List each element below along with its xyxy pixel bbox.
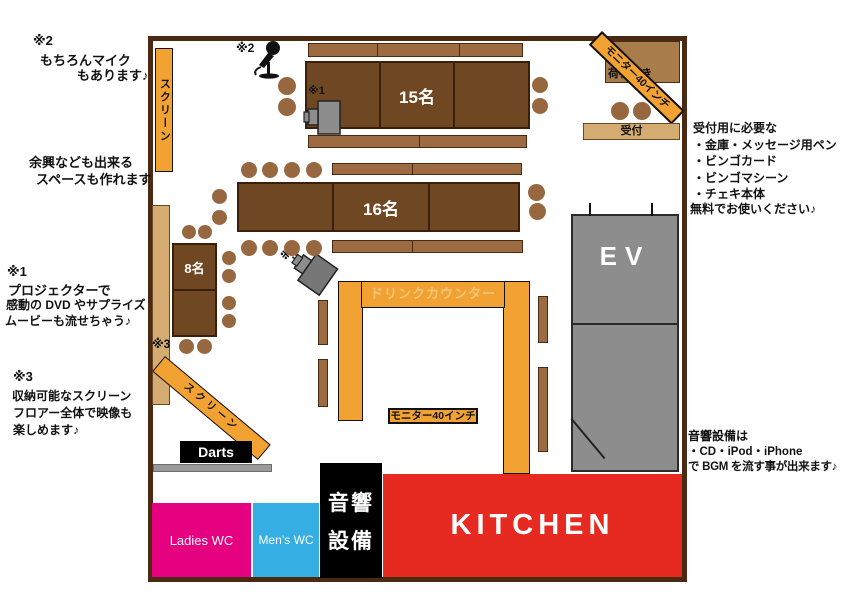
- screen-note-line3: 楽しめます♪: [13, 421, 79, 438]
- projector-icon: [303, 99, 343, 140]
- counter-bench-left-1: [318, 300, 328, 345]
- sound-equipment-room: 音響 設備: [320, 463, 382, 578]
- stool: [262, 162, 278, 178]
- monitor-40-box-label: モニター40インチ: [390, 410, 475, 422]
- stool: [222, 251, 236, 265]
- stool: [198, 225, 212, 239]
- stool: [532, 77, 548, 93]
- drink-counter-left-leg: [338, 281, 363, 421]
- sound-note-line1: 音響設備は: [688, 427, 748, 444]
- elevator-label: EV: [573, 241, 677, 272]
- stool: [528, 184, 545, 201]
- screen-panel-left: スクリーン: [155, 48, 173, 172]
- floor-plan: ※2 もちろんマイク もあります♪ 余興なども出来る スペースも作れます ※1 …: [0, 0, 842, 595]
- darts-shelf: [153, 464, 272, 472]
- projector-note-line2: 感動の DVD やサプライズ: [6, 296, 146, 313]
- stool: [284, 162, 300, 178]
- stool: [278, 98, 296, 116]
- sound-room-label-2: 設備: [328, 525, 374, 555]
- stool: [222, 269, 236, 283]
- kitchen-label: KITCHEN: [451, 509, 615, 542]
- elevator-divider: [573, 323, 677, 325]
- monitor-40-box: モニター40インチ: [388, 408, 478, 424]
- stool: [284, 240, 300, 256]
- stool: [306, 162, 322, 178]
- reception-note-line3: ・ビンゴカード: [693, 152, 777, 169]
- stool: [633, 102, 651, 120]
- sound-room-label-1: 音響: [328, 487, 374, 517]
- darts-label: Darts: [198, 444, 234, 460]
- mic-note-line2: もあります♪: [77, 65, 149, 84]
- stool: [306, 240, 322, 256]
- stool: [532, 98, 548, 114]
- screen-panel-left-label: スクリーン: [158, 78, 171, 143]
- stool: [241, 162, 257, 178]
- stool: [611, 102, 629, 120]
- projector-note-line3: ムービーも流せちゃう♪: [5, 312, 131, 329]
- stool: [262, 240, 278, 256]
- microphone-icon: [248, 40, 282, 85]
- bench-above-15: [308, 43, 523, 57]
- stool: [212, 189, 227, 204]
- table-8-label: 8名: [184, 258, 204, 277]
- stool: [182, 225, 196, 239]
- drink-counter-right-leg: [503, 281, 530, 474]
- drink-counter-label: ドリンクカウンター: [370, 287, 496, 302]
- ladies-wc-label: Ladies WC: [170, 533, 234, 548]
- sound-note-line2: ・CD・iPod・iPhone: [688, 443, 802, 459]
- projector1-marker: ※1: [308, 84, 325, 97]
- table-16: 16名: [237, 182, 520, 232]
- reception-desk: 受付: [583, 123, 680, 140]
- elevator-tick: [589, 203, 591, 216]
- elevator-door-swing: [570, 418, 605, 459]
- mic-note-marker: ※2: [33, 33, 53, 49]
- stool: [278, 77, 296, 95]
- stool: [222, 314, 236, 328]
- drink-counter-top: ドリンクカウンター: [361, 281, 505, 308]
- stool: [241, 240, 257, 256]
- stool: [529, 203, 546, 220]
- reception-note-line6: 無料でお使いください♪: [690, 200, 816, 217]
- counter-bench-left-2: [318, 359, 328, 407]
- screen-note-line2: フロアー全体で映像も: [13, 404, 132, 421]
- ladies-wc: Ladies WC: [152, 503, 251, 577]
- elevator: EV: [571, 214, 679, 472]
- screen-note-marker: ※3: [13, 369, 33, 385]
- elevator-tick: [651, 203, 653, 216]
- projector-note-marker: ※1: [7, 264, 27, 280]
- kitchen: KITCHEN: [383, 474, 682, 577]
- stool: [179, 339, 194, 354]
- counter-bench-right-2: [538, 367, 548, 452]
- screen-diag-marker: ※3: [152, 337, 170, 351]
- stool: [197, 339, 212, 354]
- bench-below-16: [332, 240, 523, 253]
- stool: [212, 210, 227, 225]
- stool: [222, 296, 236, 310]
- reception-note-line1: 受付用に必要な: [693, 119, 777, 136]
- reception-note-line2: ・金庫・メッセージ用ペン: [693, 136, 837, 153]
- mens-wc: Men’s WC: [253, 503, 319, 577]
- bench-above-16: [332, 163, 522, 175]
- table-15-label: 15名: [399, 83, 435, 108]
- screen-note-line1: 収納可能なスクリーン: [12, 387, 131, 404]
- reception-note-line4: ・ビンゴマシーン: [693, 169, 788, 186]
- space-note-line2: スペースも作れます: [36, 169, 151, 188]
- reception-desk-label: 受付: [621, 125, 643, 138]
- table-8: 8名: [172, 243, 217, 337]
- mens-wc-label: Men’s WC: [258, 533, 313, 547]
- table-16-label: 16名: [363, 195, 399, 220]
- darts-board: Darts: [180, 441, 252, 463]
- sound-note-line3: で BGM を流す事が出来ます♪: [688, 458, 837, 474]
- counter-bench-right-1: [538, 296, 548, 343]
